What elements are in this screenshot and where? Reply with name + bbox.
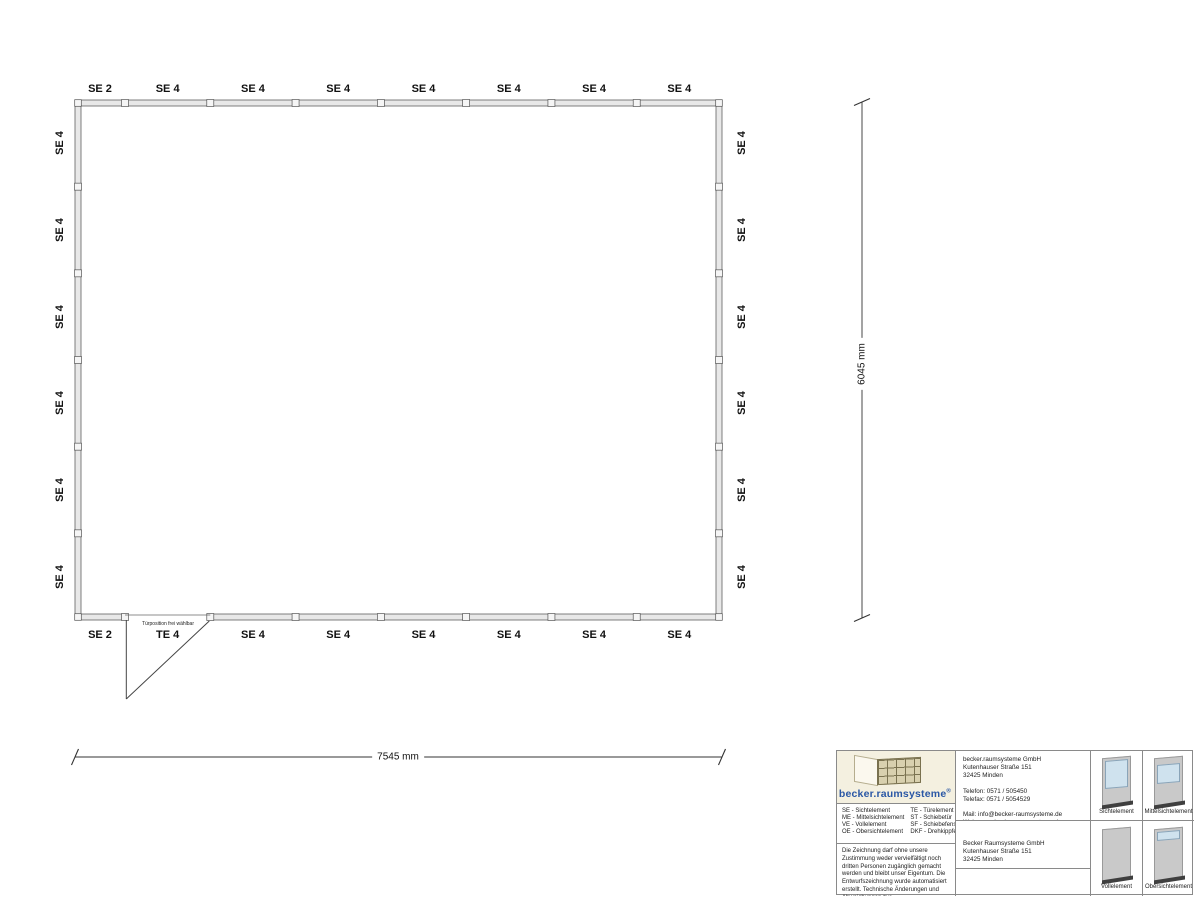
logo-grid-panel-icon	[877, 757, 921, 785]
segment-label-right: SE 4	[736, 218, 748, 242]
panel-preview-label: Obersichtelement	[1143, 884, 1194, 890]
supplier-contact-line: 32425 Minden	[963, 772, 1083, 780]
logo-open-panel-icon	[854, 755, 878, 786]
panel-preview-label: Vollelement	[1091, 884, 1142, 890]
segment-label-left: SE 4	[54, 218, 66, 242]
empty-cell	[956, 869, 1091, 896]
customer-address-line: Kutenhauser Straße 151	[963, 848, 1083, 856]
legend-item: ME - Mittelsichtelement	[842, 815, 904, 821]
drawing-sheet: SE 2SE 4SE 4SE 4SE 4SE 4SE 4SE 4SE 2TE 4…	[0, 0, 1200, 900]
segment-label-bottom: TE 4	[156, 629, 179, 641]
element-card-mittelsichtelement: Mittelsichtelement	[1143, 751, 1194, 821]
segment-label-right: SE 4	[736, 391, 748, 415]
segment-label-top: SE 4	[326, 83, 350, 95]
segment-label-bottom: SE 4	[241, 629, 265, 641]
disclaimer-cell: Die Zeichnung darf ohne unsere Zustimmun…	[837, 844, 956, 896]
segment-label-bottom: SE 4	[667, 629, 691, 641]
customer-address-line: 32425 Minden	[963, 856, 1083, 864]
panel-glass-area	[1157, 763, 1180, 784]
customer-address-line: Becker Raumsysteme GmbH	[963, 840, 1083, 848]
supplier-contact-line: Telefon: 0571 / 505450	[963, 788, 1083, 796]
panel-glass-area	[1157, 830, 1180, 841]
legend-item: SE - Sichtelement	[842, 808, 904, 814]
supplier-contact-cell: becker.raumsysteme GmbHKutenhauser Straß…	[956, 751, 1091, 821]
supplier-contact-line: Mail: info@becker-raumsysteme.de	[963, 811, 1083, 819]
copyright-disclaimer: Die Zeichnung darf ohne unsere Zustimmun…	[842, 848, 950, 896]
supplier-contact-line	[963, 780, 1083, 788]
segment-label-top: SE 2	[88, 83, 112, 95]
legend-cell: SE - SichtelementME - Mittelsichtelement…	[837, 804, 956, 844]
supplier-contact-line	[963, 804, 1083, 812]
supplier-contact-line: becker.raumsysteme GmbH	[963, 756, 1083, 764]
panel-preview-sicht-icon	[1102, 756, 1131, 807]
logo-wordmark: becker.raumsysteme	[839, 788, 947, 800]
company-logo: becker.raumsysteme®	[839, 788, 951, 800]
segment-label-top: SE 4	[156, 83, 180, 95]
registered-mark: ®	[946, 789, 951, 795]
segment-label-left: SE 4	[54, 131, 66, 155]
segment-label-right: SE 4	[736, 131, 748, 155]
panel-preview-voll-icon	[1102, 827, 1131, 882]
segment-label-left: SE 4	[54, 478, 66, 502]
panel-preview-mittel-icon	[1154, 756, 1183, 807]
height-dimension-label: 6045 mm	[857, 338, 868, 390]
legend-item: DKF - Drehkippfenster	[910, 829, 956, 835]
element-card-vollelement: Vollelement	[1091, 821, 1143, 896]
title-block: becker.raumsysteme® SE - SichtelementME …	[836, 750, 1193, 895]
segment-label-right: SE 4	[736, 565, 748, 589]
legend-item: OE - Obersichtelement	[842, 829, 904, 835]
segment-label-left: SE 4	[54, 305, 66, 329]
legend-item: VE - Vollelement	[842, 822, 904, 828]
segment-label-left: SE 4	[54, 565, 66, 589]
segment-label-bottom: SE 4	[326, 629, 350, 641]
segment-label-right: SE 4	[736, 478, 748, 502]
door-note: Türposition frei wählbar	[142, 621, 194, 627]
segment-label-top: SE 4	[412, 83, 436, 95]
segment-label-bottom: SE 2	[88, 629, 112, 641]
segment-label-top: SE 4	[497, 83, 521, 95]
legend-item: ST - Schiebetür	[910, 815, 956, 821]
element-card-sichtelement: Sichtelement	[1091, 751, 1143, 821]
legend-item: SF - Schiebefenster	[910, 822, 956, 828]
panel-preview-label: Sichtelement	[1091, 809, 1142, 815]
segment-label-bottom: SE 4	[497, 629, 521, 641]
panel-preview-ober-icon	[1154, 827, 1183, 882]
abbreviation-legend: SE - SichtelementME - Mittelsichtelement…	[842, 808, 950, 835]
panel-glass-area	[1105, 759, 1128, 789]
legend-item: TE - Türelement	[910, 808, 956, 814]
customer-address-cell: Becker Raumsysteme GmbHKutenhauser Straß…	[956, 821, 1091, 869]
logo-cell: becker.raumsysteme®	[837, 751, 956, 804]
panel-preview-label: Mittelsichtelement	[1143, 809, 1194, 815]
segment-label-bottom: SE 4	[582, 629, 606, 641]
supplier-contact-line: Kutenhauser Straße 151	[963, 764, 1083, 772]
segment-label-right: SE 4	[736, 305, 748, 329]
segment-label-top: SE 4	[667, 83, 691, 95]
segment-label-bottom: SE 4	[412, 629, 436, 641]
segment-label-left: SE 4	[54, 391, 66, 415]
supplier-contact-line: Telefax: 0571 / 5054529	[963, 796, 1083, 804]
element-card-obersichtelement: Obersichtelement	[1143, 821, 1194, 896]
segment-label-top: SE 4	[582, 83, 606, 95]
width-dimension-label: 7545 mm	[372, 752, 424, 763]
segment-label-top: SE 4	[241, 83, 265, 95]
